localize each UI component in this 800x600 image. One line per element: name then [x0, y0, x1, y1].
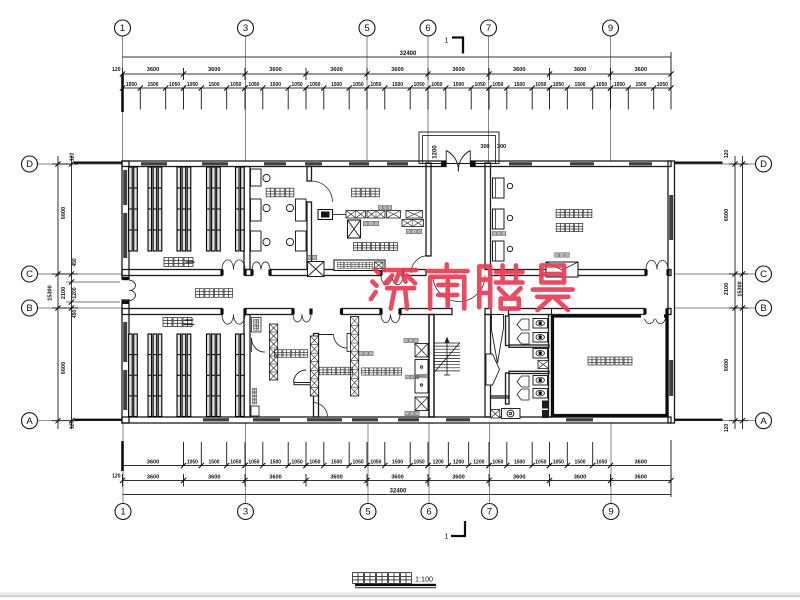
svg-text:3600: 3600 — [269, 475, 281, 481]
svg-text:1050: 1050 — [370, 460, 381, 466]
svg-text:D: D — [760, 159, 767, 170]
svg-text:1200: 1200 — [473, 460, 484, 466]
svg-text:3600: 3600 — [147, 460, 159, 466]
svg-text:1500: 1500 — [453, 82, 464, 88]
svg-text:1050: 1050 — [475, 82, 486, 88]
svg-text:1050: 1050 — [596, 460, 607, 466]
svg-text:1050: 1050 — [614, 82, 625, 88]
svg-text:6: 6 — [425, 23, 430, 34]
svg-text:1500: 1500 — [270, 82, 281, 88]
svg-text:6600: 6600 — [61, 362, 67, 374]
svg-text:3600: 3600 — [208, 475, 220, 481]
svg-text:9: 9 — [608, 23, 613, 34]
svg-text:1200: 1200 — [433, 145, 439, 159]
svg-text:1050: 1050 — [353, 460, 364, 466]
svg-text:1050: 1050 — [292, 460, 303, 466]
svg-text:1500: 1500 — [331, 460, 342, 466]
svg-text:3600: 3600 — [513, 67, 525, 73]
svg-text:120: 120 — [112, 474, 121, 480]
svg-text:5: 5 — [364, 23, 369, 34]
svg-text:2100: 2100 — [724, 283, 730, 295]
svg-text:3600: 3600 — [574, 67, 586, 73]
svg-text:3600: 3600 — [452, 67, 464, 73]
svg-text:3600: 3600 — [147, 67, 159, 73]
svg-text:1: 1 — [120, 23, 125, 34]
svg-text:1050: 1050 — [187, 460, 198, 466]
svg-text:1050: 1050 — [248, 82, 259, 88]
svg-text:120: 120 — [112, 67, 121, 73]
svg-text:3600: 3600 — [391, 475, 403, 481]
svg-text:B: B — [760, 303, 766, 314]
svg-text:6600: 6600 — [61, 207, 67, 219]
svg-text:3600: 3600 — [635, 475, 647, 481]
svg-text:3600: 3600 — [635, 67, 647, 73]
svg-text:C: C — [26, 269, 33, 280]
svg-text:3600: 3600 — [330, 475, 342, 481]
svg-text:1500: 1500 — [635, 82, 646, 88]
svg-text:1500: 1500 — [331, 82, 342, 88]
svg-text:1050: 1050 — [431, 82, 442, 88]
svg-text:6600: 6600 — [724, 209, 730, 221]
svg-text:1050: 1050 — [370, 82, 381, 88]
svg-text:6: 6 — [426, 507, 431, 518]
svg-text:1050: 1050 — [126, 82, 137, 88]
svg-text:32400: 32400 — [400, 51, 417, 57]
svg-text:15300: 15300 — [738, 281, 744, 297]
svg-text:1050: 1050 — [535, 460, 546, 466]
svg-text:1200: 1200 — [433, 460, 444, 466]
svg-text:1050: 1050 — [292, 82, 303, 88]
svg-text:3600: 3600 — [147, 475, 159, 481]
svg-text:6600: 6600 — [724, 359, 730, 371]
svg-text:1050: 1050 — [230, 460, 241, 466]
svg-text:15300: 15300 — [48, 285, 54, 301]
svg-text:5: 5 — [365, 507, 370, 518]
svg-text:3600: 3600 — [513, 475, 525, 481]
svg-text:9: 9 — [608, 507, 613, 518]
svg-text:3600: 3600 — [391, 67, 403, 73]
svg-text:3600: 3600 — [574, 475, 586, 481]
svg-text:1050: 1050 — [492, 460, 503, 466]
svg-text:1500: 1500 — [574, 82, 585, 88]
svg-text:1:100: 1:100 — [415, 575, 433, 584]
svg-text:1500: 1500 — [208, 460, 219, 466]
svg-text:C: C — [760, 269, 767, 280]
svg-text:1050: 1050 — [553, 82, 564, 88]
svg-text:300: 300 — [480, 144, 489, 150]
svg-text:1050: 1050 — [187, 82, 198, 88]
svg-text:1: 1 — [120, 507, 125, 518]
svg-text:1200: 1200 — [453, 460, 464, 466]
svg-text:450: 450 — [72, 258, 78, 267]
svg-text:1050: 1050 — [414, 82, 425, 88]
svg-text:1500: 1500 — [270, 460, 281, 466]
svg-text:32400: 32400 — [390, 489, 407, 495]
svg-text:1500: 1500 — [514, 460, 525, 466]
svg-text:2100: 2100 — [61, 287, 67, 299]
svg-text:1050: 1050 — [248, 460, 259, 466]
svg-text:1500: 1500 — [147, 82, 158, 88]
svg-text:1050: 1050 — [657, 82, 668, 88]
svg-text:1500: 1500 — [392, 82, 403, 88]
svg-text:3: 3 — [243, 507, 248, 518]
svg-text:3600: 3600 — [330, 67, 342, 73]
svg-text:120: 120 — [70, 153, 76, 162]
svg-text:A: A — [26, 416, 33, 427]
svg-text:3: 3 — [243, 23, 248, 34]
svg-text:1050: 1050 — [535, 82, 546, 88]
svg-text:1200: 1200 — [72, 287, 78, 298]
svg-text:1050: 1050 — [169, 82, 180, 88]
svg-text:300: 300 — [497, 144, 506, 150]
svg-text:1050: 1050 — [492, 82, 503, 88]
svg-text:B: B — [26, 303, 32, 314]
svg-text:3600: 3600 — [635, 460, 647, 466]
svg-text:1500: 1500 — [574, 460, 585, 466]
svg-text:1050: 1050 — [596, 82, 607, 88]
svg-text:3600: 3600 — [208, 67, 220, 73]
svg-text:1500: 1500 — [208, 82, 219, 88]
svg-text:A: A — [760, 416, 767, 427]
svg-text:1050: 1050 — [309, 82, 320, 88]
svg-text:1050: 1050 — [553, 460, 564, 466]
svg-text:1500: 1500 — [514, 82, 525, 88]
svg-text:3600: 3600 — [452, 475, 464, 481]
svg-text:3600: 3600 — [269, 67, 281, 73]
svg-text:120: 120 — [724, 424, 730, 433]
svg-text:1500: 1500 — [392, 460, 403, 466]
svg-text:120: 120 — [724, 150, 730, 159]
svg-text:1050: 1050 — [353, 82, 364, 88]
svg-text:1050: 1050 — [414, 460, 425, 466]
svg-text:7: 7 — [487, 507, 492, 518]
svg-text:1050: 1050 — [230, 82, 241, 88]
svg-text:7: 7 — [486, 23, 491, 34]
svg-text:1: 1 — [445, 38, 449, 45]
svg-text:D: D — [26, 159, 33, 170]
svg-text:1: 1 — [445, 534, 449, 541]
svg-text:450: 450 — [72, 310, 78, 319]
svg-text:1050: 1050 — [309, 460, 320, 466]
